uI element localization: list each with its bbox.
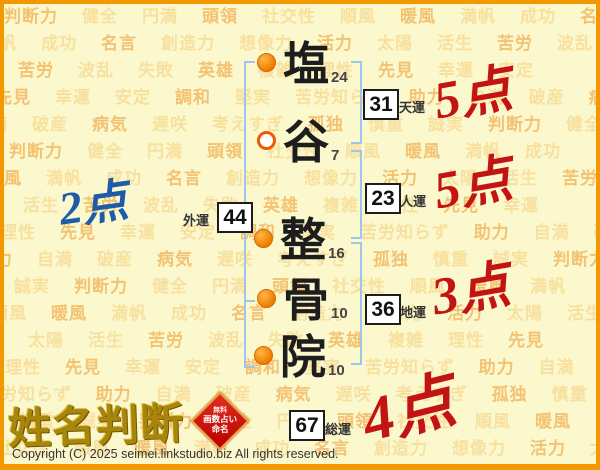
gaiun-label: 外運 xyxy=(183,210,209,229)
chiun-score: 3点 xyxy=(428,260,514,325)
jinun-bracket xyxy=(351,150,362,239)
tenun-label: 天運 xyxy=(399,97,425,116)
stamp-text: 無料 画数占い 命名 xyxy=(203,407,237,435)
chiun-value-box: 36 xyxy=(365,294,401,325)
red-seal-stamp-icon: 無料 画数占い 命名 xyxy=(190,391,249,450)
stroke-count: 24 xyxy=(331,70,348,85)
souun-score: 4点 xyxy=(356,370,461,453)
name-character: 整 xyxy=(280,218,326,264)
stroke-count: 16 xyxy=(328,246,345,261)
name-character: 骨 xyxy=(283,278,329,324)
souun-value-box: 67 xyxy=(289,410,325,441)
copyright-text: Copyright (C) 2025 seimei.linkstudio.biz… xyxy=(12,447,339,461)
name-char-row: 谷 7 xyxy=(257,120,339,166)
name-char-row: 院 10 xyxy=(254,335,345,381)
name-character: 塩 xyxy=(283,42,329,88)
char-bullet-icon xyxy=(257,289,276,308)
char-bullet-icon xyxy=(254,346,273,365)
tenun-score: 5点 xyxy=(430,64,516,129)
jinun-label: 人運 xyxy=(400,191,426,210)
chiun-label: 地運 xyxy=(400,302,426,321)
stroke-count: 7 xyxy=(331,148,339,163)
name-char-row: 塩 24 xyxy=(257,42,348,88)
name-character: 院 xyxy=(280,335,326,381)
souun-label: 総運 xyxy=(325,419,351,438)
jinun-value-box: 23 xyxy=(365,183,401,214)
gaiun-bracket-tick xyxy=(246,300,255,302)
jinun-score: 5点 xyxy=(430,154,516,219)
stroke-count: 10 xyxy=(331,306,348,321)
char-bullet-icon xyxy=(254,229,273,248)
gaiun-value-box: 44 xyxy=(217,202,253,233)
name-character: 谷 xyxy=(283,120,329,166)
result-page: 判断力健全円満頭領社交性順風暖風満帆成功名言満帆成功名言創造力想像力活力太陽活生… xyxy=(0,0,600,470)
char-bullet-icon xyxy=(257,53,276,72)
tenun-bracket xyxy=(351,61,362,144)
gaiun-score: 2点 xyxy=(56,177,131,232)
char-bullet-hollow-icon xyxy=(257,131,276,150)
tenun-value-box: 31 xyxy=(363,89,399,120)
name-char-row: 整 16 xyxy=(254,218,345,264)
stroke-count: 10 xyxy=(328,363,345,378)
chiun-bracket xyxy=(351,242,362,365)
name-char-row: 骨 10 xyxy=(257,278,348,324)
